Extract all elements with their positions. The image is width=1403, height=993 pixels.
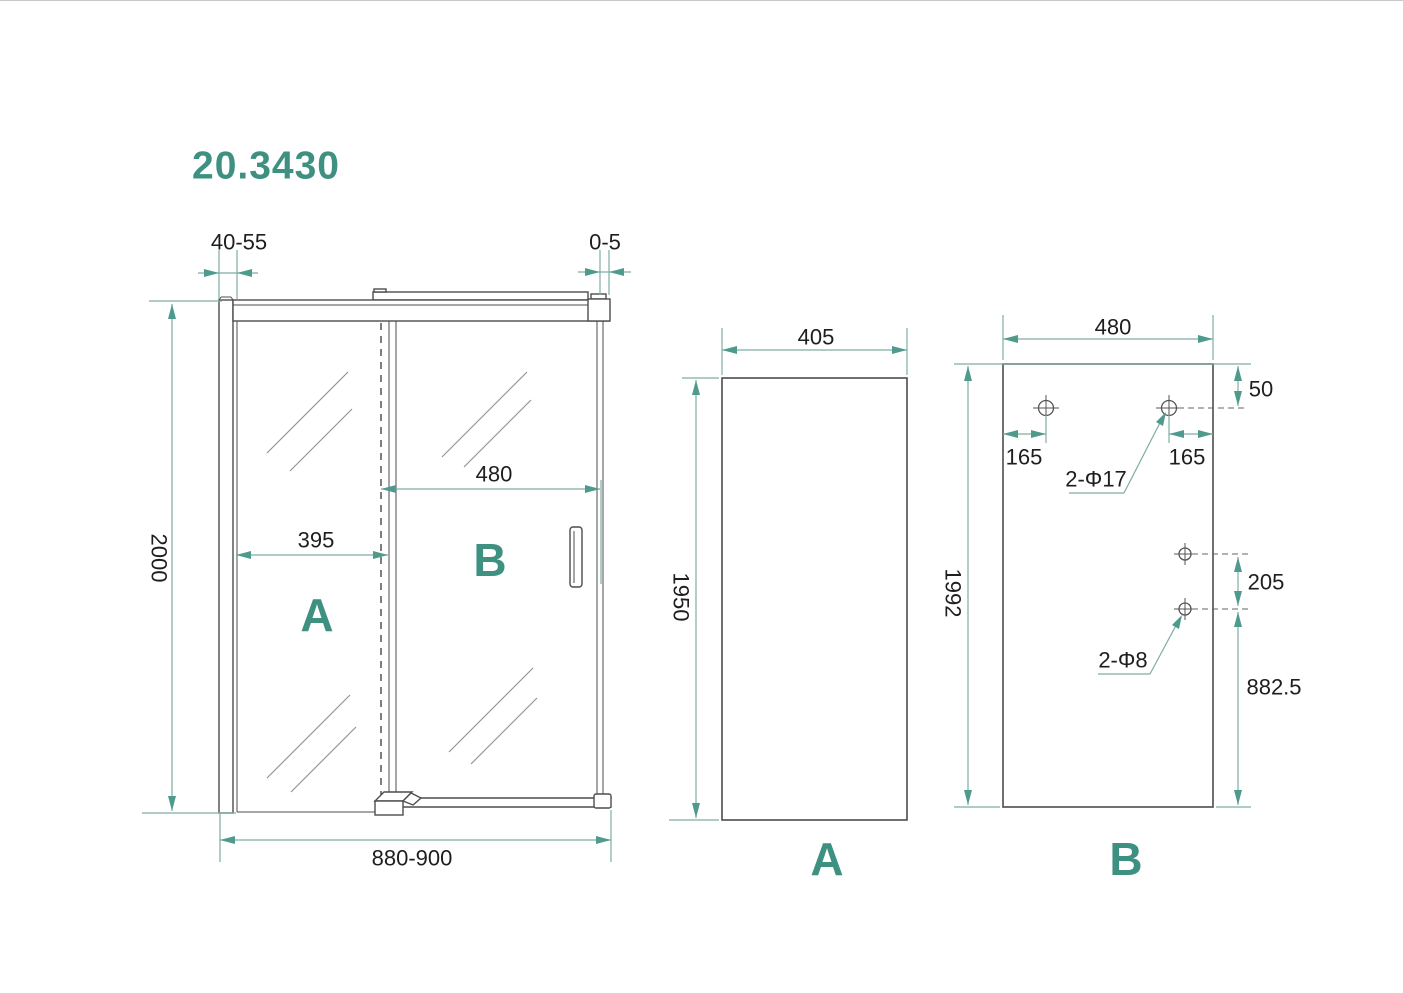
dim-fixed-panel-width-value: 395 [298, 528, 335, 553]
dim-a-width-value: 405 [798, 325, 835, 350]
technical-drawing: 20.3430 [0, 1, 1403, 993]
panel-a-glass-outline [722, 378, 907, 820]
side-holes-label: 2-Φ8 [1098, 648, 1147, 673]
panel-a-view: 405 1950 A [669, 325, 908, 886]
dim-wall-adjust: 40-55 [198, 230, 267, 300]
dim-a-height-value: 1950 [669, 573, 694, 622]
top-rail [233, 289, 609, 321]
dim-top-hole-offset-value: 50 [1249, 377, 1273, 402]
dim-hole-spacing: 205 [1234, 557, 1284, 606]
top-holes-label: 2-Φ17 [1065, 467, 1127, 492]
dim-b-width-value: 480 [1095, 315, 1132, 340]
dim-total-width: 880-900 [220, 810, 611, 871]
bottom-rail [388, 794, 611, 808]
dim-top-hole-offset: 50 [1234, 366, 1273, 406]
panel-b-view: 480 1992 50 165 [941, 315, 1302, 886]
dim-b-width: 480 [1003, 315, 1213, 361]
dim-wall-adjust-value: 40-55 [211, 230, 267, 255]
dim-a-width: 405 [722, 325, 907, 376]
glass-panel-a [237, 321, 381, 812]
drawing-title: 20.3430 [192, 145, 340, 188]
panel-b-glass-outline [1003, 364, 1213, 807]
dim-right-hole-inset-value: 165 [1169, 445, 1206, 470]
dim-left-hole-inset-value: 165 [1006, 445, 1043, 470]
floor-guide-block [375, 792, 421, 815]
front-panel-b-label: B [473, 534, 506, 586]
glass-panel-b [389, 321, 537, 798]
dim-b-height-value: 1992 [941, 569, 966, 618]
panel-b-view-label: B [1109, 833, 1142, 885]
dim-door-gap: 0-5 [578, 230, 631, 296]
drawing-sheet: 20.3430 [0, 0, 1403, 993]
panel-a-view-label: A [810, 833, 843, 885]
dim-total-height-value: 2000 [147, 534, 172, 583]
left-wall-profile [219, 297, 233, 813]
front-panel-a-label: A [300, 589, 333, 641]
right-wall-profile [588, 294, 610, 796]
dim-a-height: 1950 [669, 378, 720, 820]
dim-door-gap-value: 0-5 [589, 230, 621, 255]
dim-total-width-value: 880-900 [372, 846, 453, 871]
door-handle [570, 527, 582, 587]
dim-hole-bottom-offset: 882.5 [1234, 612, 1302, 805]
front-view: 40-55 0-5 2000 395 [142, 230, 631, 871]
dim-fixed-panel-width: 395 [236, 528, 388, 560]
dim-hole-spacing-value: 205 [1248, 570, 1285, 595]
dim-door-width-value: 480 [476, 462, 513, 487]
dim-hole-bottom-offset-value: 882.5 [1246, 675, 1301, 700]
